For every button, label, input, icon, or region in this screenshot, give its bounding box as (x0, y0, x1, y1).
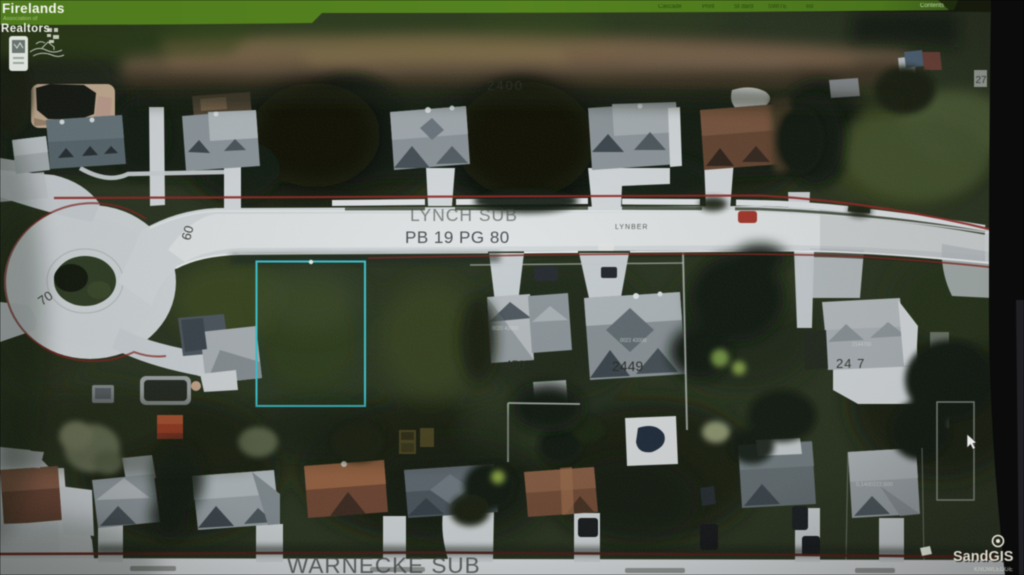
svg-text:Association of: Association of (3, 16, 38, 22)
svg-text:SandGIS: SandGIS (953, 549, 1014, 565)
svg-text:SWITE: SWITE (768, 4, 787, 10)
svg-text:KNOWLEDGE: KNOWLEDGE (974, 567, 1013, 573)
svg-text:list: list (806, 4, 814, 10)
svg-text:St dard: St dard (734, 4, 753, 10)
svg-text:Realtors: Realtors (1, 23, 50, 35)
svg-text:Firelands: Firelands (2, 1, 65, 16)
svg-text:Cascade: Cascade (658, 4, 682, 10)
svg-text:Print: Print (702, 4, 715, 10)
svg-text:Contents: Contents (920, 3, 944, 9)
